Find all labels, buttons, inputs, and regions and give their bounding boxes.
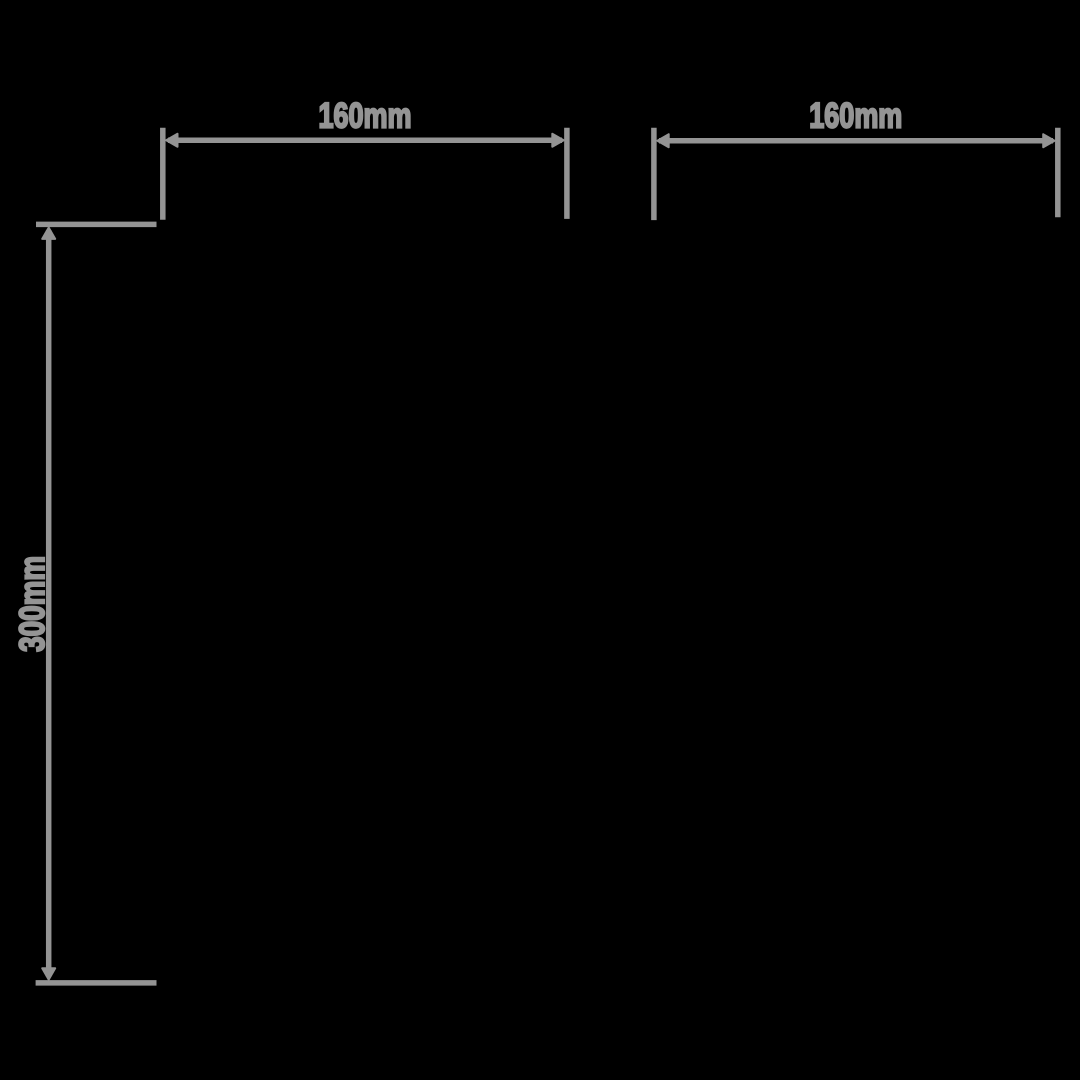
svg-text:160mm: 160mm xyxy=(319,96,412,135)
svg-text:160mm: 160mm xyxy=(809,96,902,135)
svg-text:300mm: 300mm xyxy=(13,556,52,652)
